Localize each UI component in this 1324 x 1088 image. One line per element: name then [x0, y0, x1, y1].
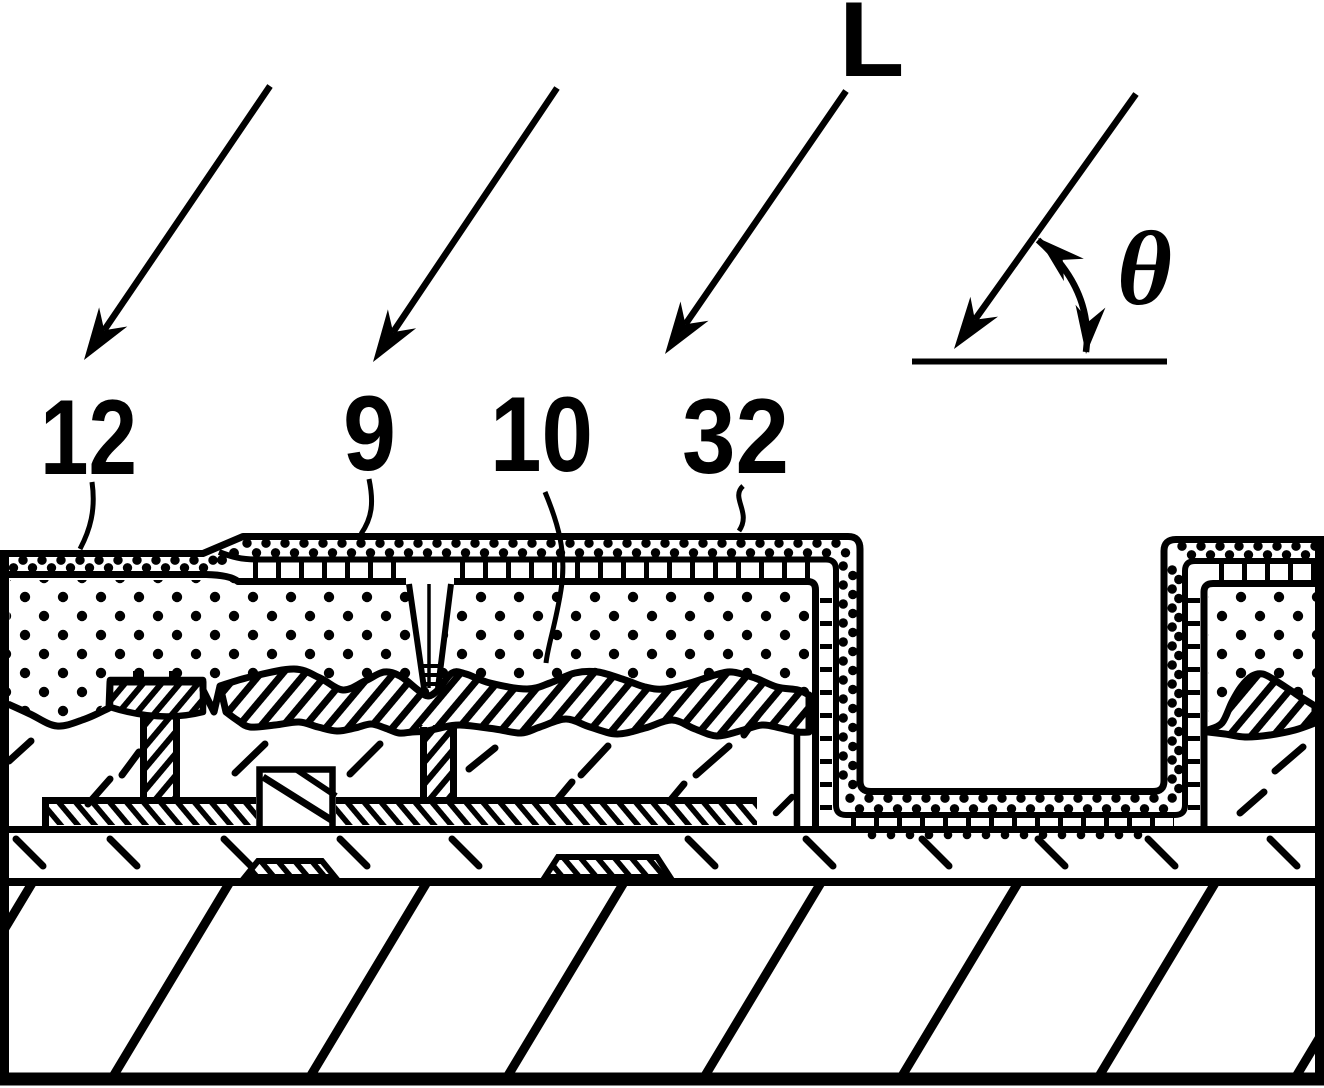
svg-text:9: 9 [343, 373, 396, 493]
svg-text:32: 32 [682, 376, 789, 496]
svg-text:10: 10 [490, 374, 593, 494]
svg-text:θ: θ [1117, 210, 1172, 327]
svg-text:L: L [839, 0, 904, 99]
svg-text:12: 12 [40, 377, 137, 497]
